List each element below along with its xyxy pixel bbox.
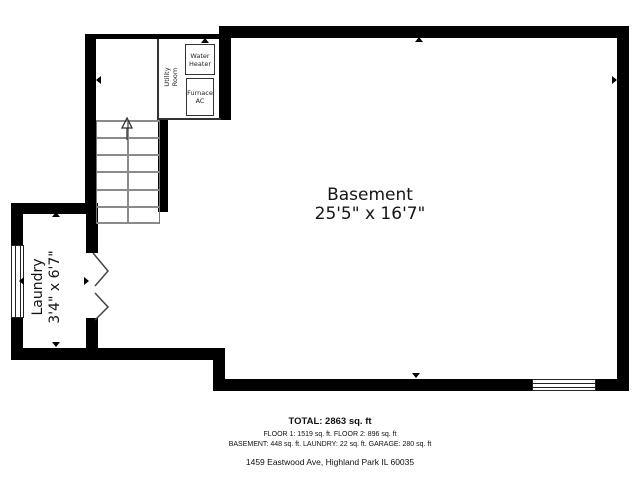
- window-frame-line: [533, 387, 595, 388]
- laundry-dimensions: 3'4" x 6'7": [47, 235, 64, 339]
- area-summary: TOTAL: 2863 sq. ft FLOOR 1: 1519 sq. ft.…: [30, 416, 630, 467]
- property-address: 1459 Eastwood Ave, Highland Park IL 6003…: [30, 457, 630, 467]
- wall-marker-icon: [201, 38, 209, 43]
- wall-marker-icon: [415, 37, 423, 42]
- wall-marker-icon: [84, 277, 89, 285]
- doorway-chevrons: [85, 248, 117, 326]
- wall-marker-icon: [52, 342, 60, 347]
- basement-room-label: Basement 25'5" x 16'7": [270, 186, 470, 224]
- wall-bottom-left: [11, 348, 225, 360]
- basement-name: Basement: [270, 186, 470, 205]
- wall-right: [617, 26, 629, 391]
- water-heater-box: Water Heater: [185, 44, 215, 75]
- floor-areas-text: FLOOR 1: 1519 sq. ft. FLOOR 2: 896 sq. f…: [30, 431, 630, 438]
- basement-dimensions: 25'5" x 16'7": [270, 205, 470, 224]
- wall-marker-icon: [96, 76, 101, 84]
- wall-marker-icon: [412, 373, 420, 378]
- wall-utility-right: [219, 26, 231, 120]
- wall-marker-icon: [612, 76, 617, 84]
- wall-top-right: [219, 26, 629, 38]
- room-areas-text: BASEMENT: 448 sq. ft. LAUNDRY: 22 sq. ft…: [30, 441, 630, 448]
- stairs-up-arrow-icon: [118, 114, 138, 142]
- laundry-name: Laundry: [30, 235, 47, 339]
- utility-partition-left: [157, 39, 159, 120]
- laundry-room-label: Laundry 3'4" x 6'7": [30, 235, 64, 339]
- basement-window: [532, 379, 596, 391]
- wall-marker-icon: [52, 212, 60, 217]
- total-area-text: TOTAL: 2863 sq. ft: [30, 416, 630, 427]
- window-frame-line: [15, 246, 16, 317]
- furnace-label: Furnace AC: [187, 89, 213, 105]
- utility-room-label: Utility Room: [163, 61, 181, 93]
- window-frame-line: [533, 383, 595, 384]
- utility-partition-bottom: [157, 118, 221, 120]
- water-heater-label: Water Heater: [186, 52, 214, 68]
- wall-stair-left: [85, 34, 96, 214]
- wall-marker-icon: [19, 277, 24, 285]
- floorplan-canvas: Water Heater Furnace AC Basement 25'5" x…: [0, 0, 640, 480]
- furnace-box: Furnace AC: [186, 78, 214, 116]
